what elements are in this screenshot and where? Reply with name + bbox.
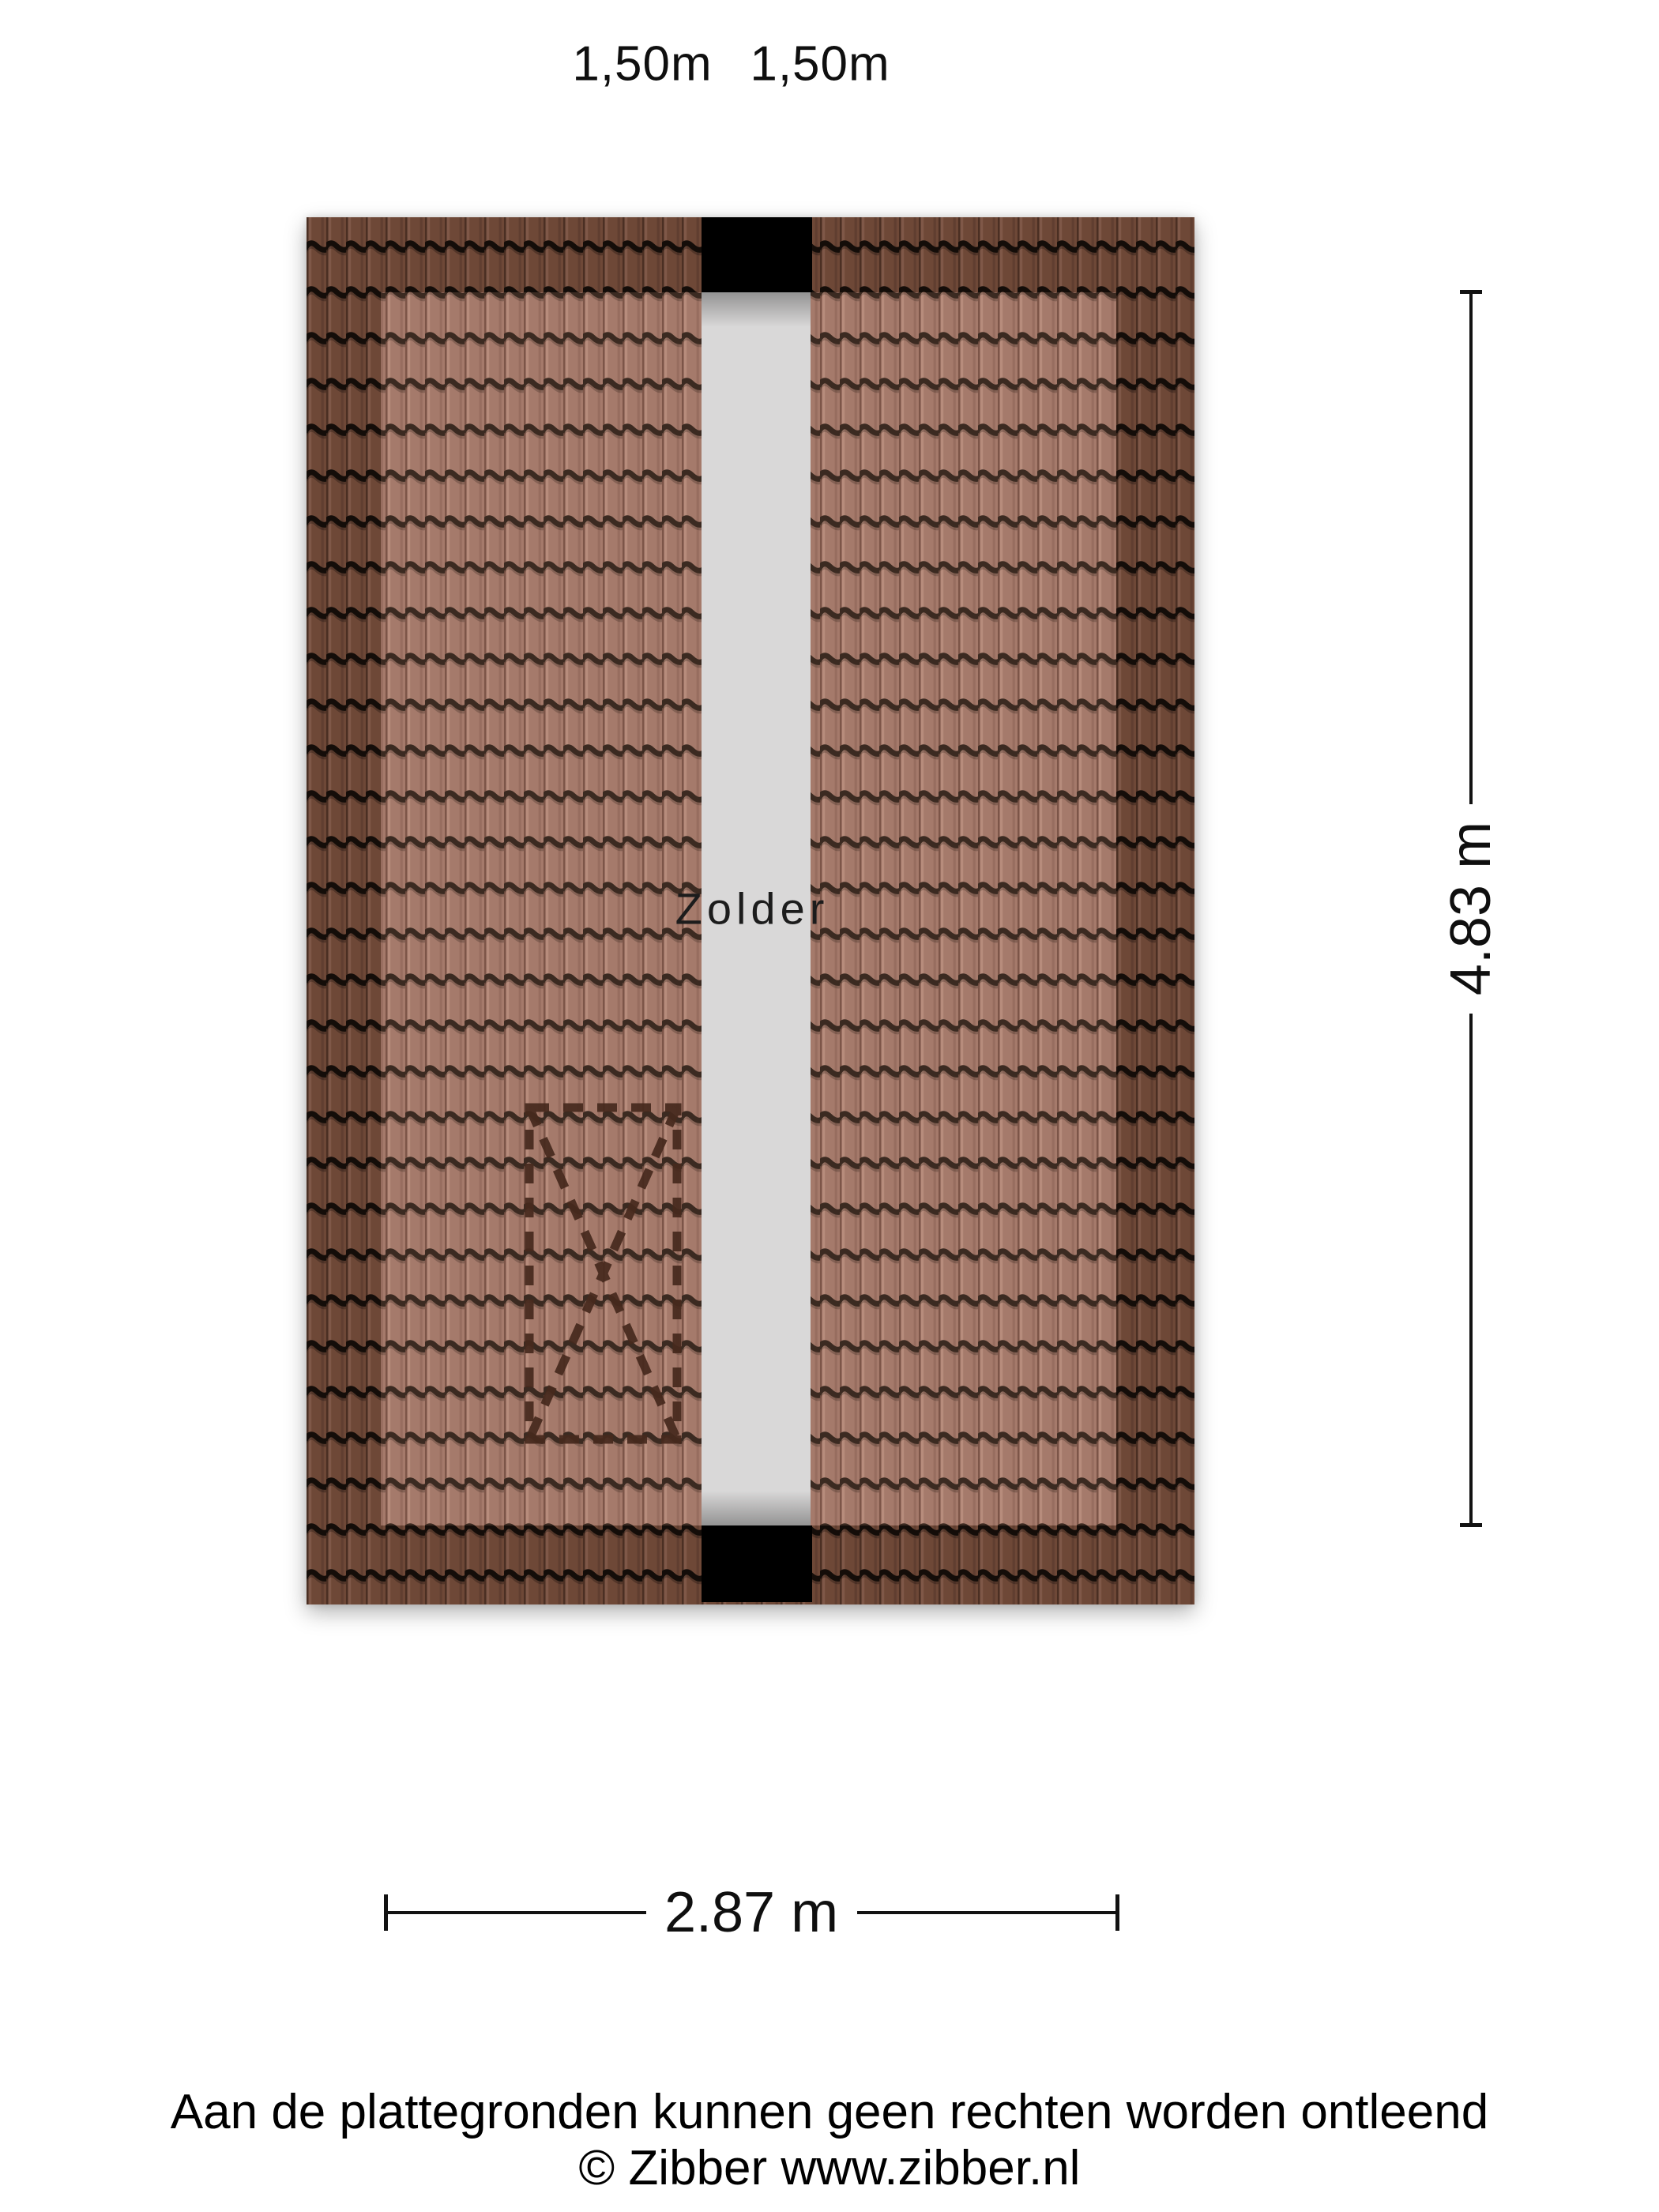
beam-block-bottom: [702, 1525, 812, 1602]
right-dimension-tick-bottom: [1460, 1523, 1482, 1527]
ridge-strip-bottom-shadow: [702, 1491, 811, 1525]
copyright-text: © Zibber www.zibber.nl: [0, 2140, 1659, 2196]
bottom-dimension-line-left: [387, 1911, 646, 1914]
disclaimer-text: Aan de plattegronden kunnen geen rechten…: [0, 2084, 1659, 2140]
beam-block-top: [702, 217, 812, 292]
room-label: Zolder: [675, 883, 829, 935]
bottom-dimension-line-right: [857, 1911, 1116, 1914]
bottom-dimension-tick-right: [1115, 1894, 1119, 1931]
right-dimension-tick-top: [1460, 290, 1482, 294]
ridge-strip-top-shadow: [702, 292, 811, 327]
right-dimension-line-upper: [1469, 292, 1473, 804]
right-dimension-line-lower: [1469, 1014, 1473, 1525]
dimension-label-top-right: 1,50m: [750, 36, 890, 92]
dimension-label-right: 4.83 m: [1439, 822, 1503, 995]
floorplan-page: 1,50m 1,50m: [0, 0, 1659, 2212]
dimension-label-top-left: 1,50m: [572, 36, 712, 92]
bottom-dimension-tick-left: [384, 1894, 388, 1931]
dimension-label-bottom: 2.87 m: [664, 1880, 838, 1945]
